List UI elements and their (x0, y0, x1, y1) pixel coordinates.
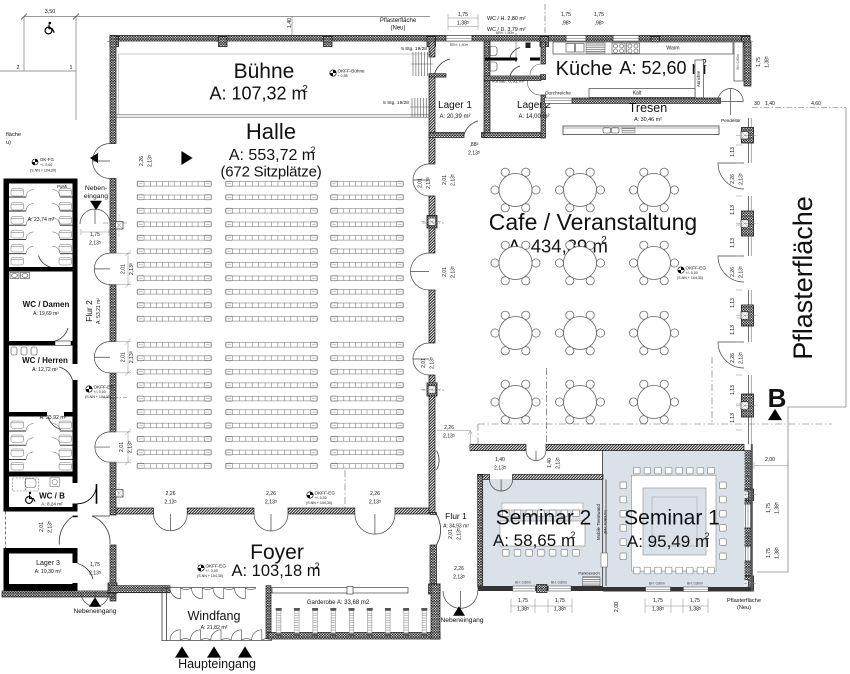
svg-text:A: 14,00 m²: A: 14,00 m² (518, 114, 549, 120)
svg-text:2,26: 2,26 (165, 491, 175, 497)
svg-text:A: 58,65 m: A: 58,65 m (493, 531, 575, 550)
svg-text:1,13: 1,13 (730, 298, 736, 308)
svg-text:BRH: 1,80m: BRH: 1,80m (450, 43, 469, 47)
svg-text:A: 23,74 m²: A: 23,74 m² (28, 217, 55, 223)
svg-text:(B/H: 9,08/3,50): (B/H: 9,08/3,50) (604, 510, 608, 534)
svg-text:BH: 0,80m: BH: 0,80m (649, 582, 665, 586)
svg-text:eingang: eingang (84, 193, 108, 200)
svg-text:Foyer: Foyer (250, 541, 304, 564)
svg-text:2,00: 2,00 (614, 602, 620, 612)
svg-text:Pendeltür: Pendeltür (721, 118, 741, 123)
svg-text:1,75: 1,75 (766, 548, 772, 558)
svg-text:2: 2 (302, 84, 308, 95)
svg-text:2,01: 2,01 (121, 352, 127, 362)
svg-text:OKFF-EG: OKFF-EG (315, 491, 336, 496)
svg-text:2,01: 2,01 (442, 175, 448, 185)
svg-text:A: 21,82 m²: A: 21,82 m² (201, 625, 228, 631)
svg-text:2,26: 2,26 (139, 156, 145, 166)
svg-text:2,00: 2,00 (765, 457, 775, 463)
svg-text:2,26: 2,26 (730, 267, 736, 277)
svg-text:2,26: 2,26 (370, 491, 380, 497)
svg-text:Bühne: Bühne (234, 60, 295, 83)
svg-text:1,75: 1,75 (458, 12, 468, 18)
svg-text:2: 2 (704, 531, 709, 541)
svg-text:OKFF-Bühne: OKFF-Bühne (338, 69, 366, 74)
svg-text:fläche: fläche (6, 132, 21, 138)
svg-text:Küche: Küche (556, 58, 613, 80)
svg-text:(Neu): (Neu) (737, 605, 751, 611)
svg-text:OKFF-EG: OKFF-EG (94, 385, 115, 390)
svg-text:+ 0,95: + 0,95 (338, 74, 348, 78)
svg-text:1,75: 1,75 (766, 503, 772, 513)
svg-text:5 Stg. 19/28: 5 Stg. 19/28 (383, 100, 409, 106)
svg-text:(S.NN + 104,30): (S.NN + 104,30) (306, 501, 332, 505)
svg-text:A: 53,21 m²: A: 53,21 m² (96, 298, 102, 324)
svg-text:2: 2 (314, 561, 319, 571)
svg-text:2,01: 2,01 (448, 529, 454, 539)
svg-text:A: 10,30 m²: A: 10,30 m² (35, 569, 62, 575)
svg-text:WC / Damen: WC / Damen (23, 300, 70, 309)
svg-text:Windfang: Windfang (188, 609, 241, 623)
svg-text:Haupteingang: Haupteingang (178, 657, 256, 671)
svg-text:+/- 0,00: +/- 0,00 (686, 271, 698, 275)
svg-text:OK-FG: OK-FG (40, 157, 54, 162)
svg-text:Nebeneingang: Nebeneingang (441, 617, 484, 624)
svg-text:1,75: 1,75 (555, 598, 565, 604)
svg-text:1,75: 1,75 (594, 12, 604, 18)
svg-text:(S.NN + 104,30): (S.NN + 104,30) (197, 574, 223, 578)
svg-text:1,40: 1,40 (765, 101, 775, 107)
svg-text:(Neu): (Neu) (390, 26, 405, 32)
svg-text:B: B (768, 383, 787, 413)
svg-text:1,40: 1,40 (495, 457, 505, 463)
svg-text:Neben-: Neben- (85, 185, 107, 192)
svg-text:1,75: 1,75 (756, 57, 762, 67)
svg-text:3,50: 3,50 (45, 9, 56, 15)
svg-text:+/- 0,00: +/- 0,00 (206, 569, 218, 573)
svg-text:+/- 0,00: +/- 0,00 (40, 163, 52, 167)
svg-text:2,01: 2,01 (418, 178, 424, 188)
svg-text:A: 34,93 m²: A: 34,93 m² (443, 524, 469, 530)
svg-text:2,01: 2,01 (442, 267, 448, 277)
svg-text:1,40: 1,40 (547, 458, 553, 468)
svg-text:OKFF-EG: OKFF-EG (686, 266, 707, 271)
svg-text:BRH: 1,80m: BRH: 1,80m (496, 31, 515, 35)
svg-text:Pflasterfläche: Pflasterfläche (727, 598, 761, 604)
svg-text:Cafe / Veranstaltung: Cafe / Veranstaltung (489, 209, 697, 235)
svg-text:4,60: 4,60 (811, 101, 821, 107)
svg-text:Lager 1: Lager 1 (438, 100, 472, 111)
svg-text:+/- 0,00: +/- 0,00 (94, 390, 106, 394)
svg-text:1: 1 (70, 65, 73, 71)
svg-text:u): u) (6, 140, 11, 146)
svg-text:A: 30,46 m²: A: 30,46 m² (634, 117, 662, 123)
svg-text:2,26: 2,26 (730, 353, 736, 363)
svg-text:Nebeneingang: Nebeneingang (74, 608, 117, 615)
svg-text:Anrichte: Anrichte (696, 70, 701, 87)
svg-text:A: 553,72 m: A: 553,72 m (229, 147, 315, 164)
svg-text:2,01: 2,01 (121, 264, 127, 274)
svg-text:30: 30 (754, 101, 760, 107)
svg-text:2,26: 2,26 (444, 425, 454, 431)
svg-text:2: 2 (310, 145, 315, 155)
svg-text:1,75: 1,75 (90, 232, 100, 238)
svg-text:Durchreiche: Durchreiche (545, 91, 571, 97)
svg-text:OKFF-EG: OKFF-EG (206, 564, 227, 569)
svg-text:BH: 0,80m: BH: 0,80m (736, 54, 740, 69)
svg-text:1,13: 1,13 (730, 238, 736, 248)
svg-text:2,01: 2,01 (421, 358, 427, 368)
svg-text:Seminar 2: Seminar 2 (496, 507, 592, 530)
svg-text:1,75: 1,75 (653, 598, 663, 604)
svg-text:1,13: 1,13 (730, 385, 736, 395)
svg-text:BH: 0,80m: BH: 0,80m (551, 581, 567, 585)
svg-text:(S.NN + 104,30): (S.NN + 104,30) (85, 395, 111, 399)
svg-text:Tresen: Tresen (629, 101, 667, 115)
svg-text:5 Stg. 19/28: 5 Stg. 19/28 (401, 46, 427, 52)
svg-text:PuMi: PuMi (57, 184, 67, 189)
svg-text:Halle: Halle (246, 119, 296, 144)
svg-text:1,13: 1,13 (730, 147, 736, 157)
svg-text:Warm: Warm (666, 46, 679, 52)
svg-text:BH: 0,80m: BH: 0,80m (687, 582, 703, 586)
svg-text:A: 52,60 m: A: 52,60 m (619, 58, 706, 78)
svg-text:Pflasterfläche: Pflasterfläche (788, 196, 818, 360)
svg-text:A: 23,92 m²: A: 23,92 m² (40, 415, 67, 421)
svg-text:(S.NN + 104,30): (S.NN + 104,30) (677, 276, 703, 280)
svg-text:2,26: 2,26 (266, 491, 276, 497)
svg-text:(672 Sitzplätze): (672 Sitzplätze) (220, 164, 321, 181)
svg-text:2,26: 2,26 (730, 174, 736, 184)
svg-text:2,01: 2,01 (39, 522, 45, 532)
svg-text:2,26: 2,26 (454, 566, 464, 572)
svg-text:A: 8,24 m²: A: 8,24 m² (41, 502, 63, 507)
svg-text:A: 19,69 m²: A: 19,69 m² (33, 311, 59, 317)
svg-text:Flur 1: Flur 1 (445, 511, 467, 521)
svg-text:A: 20,39 m²: A: 20,39 m² (439, 114, 470, 120)
svg-text:A: 103,18 m: A: 103,18 m (232, 562, 321, 580)
svg-text:1,75: 1,75 (518, 598, 528, 604)
svg-text:Kalt: Kalt (633, 91, 642, 97)
svg-text:(S.NN = 104,30): (S.NN = 104,30) (30, 169, 56, 173)
svg-text:2,01: 2,01 (119, 442, 125, 452)
svg-text:2: 2 (601, 235, 607, 246)
svg-text:A: 107,32 m: A: 107,32 m (209, 84, 306, 104)
svg-text:Pflasterfläche: Pflasterfläche (380, 18, 417, 24)
svg-text:2: 2 (570, 530, 575, 540)
svg-text:BH: 0,80m: BH: 0,80m (515, 581, 531, 585)
svg-text:1,13: 1,13 (730, 205, 736, 215)
svg-text:Vorrau. 0,91 m²: Vorrau. 0,91 m² (491, 79, 524, 85)
svg-text:1,75: 1,75 (690, 598, 700, 604)
svg-text:Garderobe A: 33,68 m2: Garderobe A: 33,68 m2 (307, 600, 370, 606)
svg-text:1,75: 1,75 (561, 12, 571, 18)
svg-text:A: 95,49 m: A: 95,49 m (627, 532, 709, 551)
svg-text:WC / B: WC / B (39, 492, 65, 501)
svg-text:1,75: 1,75 (90, 562, 100, 568)
svg-text:WC / Herren: WC / Herren (22, 356, 68, 365)
svg-text:WC / H. 2,80 m²: WC / H. 2,80 m² (487, 16, 526, 22)
svg-text:+/- 0,00: +/- 0,00 (315, 496, 327, 500)
svg-text:2: 2 (17, 65, 20, 71)
svg-text:Parkbereich: Parkbereich (578, 571, 599, 576)
svg-text:Mobile Trennwand: Mobile Trennwand (596, 504, 601, 540)
svg-text:BH: 0,80m: BH: 0,80m (746, 532, 750, 547)
svg-text:1,13: 1,13 (730, 325, 736, 335)
svg-text:A: 12,72 m²: A: 12,72 m² (32, 367, 58, 373)
svg-text:1,13: 1,13 (730, 413, 736, 423)
svg-text:Lager 3: Lager 3 (36, 560, 60, 567)
svg-text:BH: 0,80m: BH: 0,80m (746, 462, 750, 477)
svg-text:Seminar 1: Seminar 1 (624, 507, 720, 530)
svg-text:Flur 2: Flur 2 (84, 300, 94, 322)
